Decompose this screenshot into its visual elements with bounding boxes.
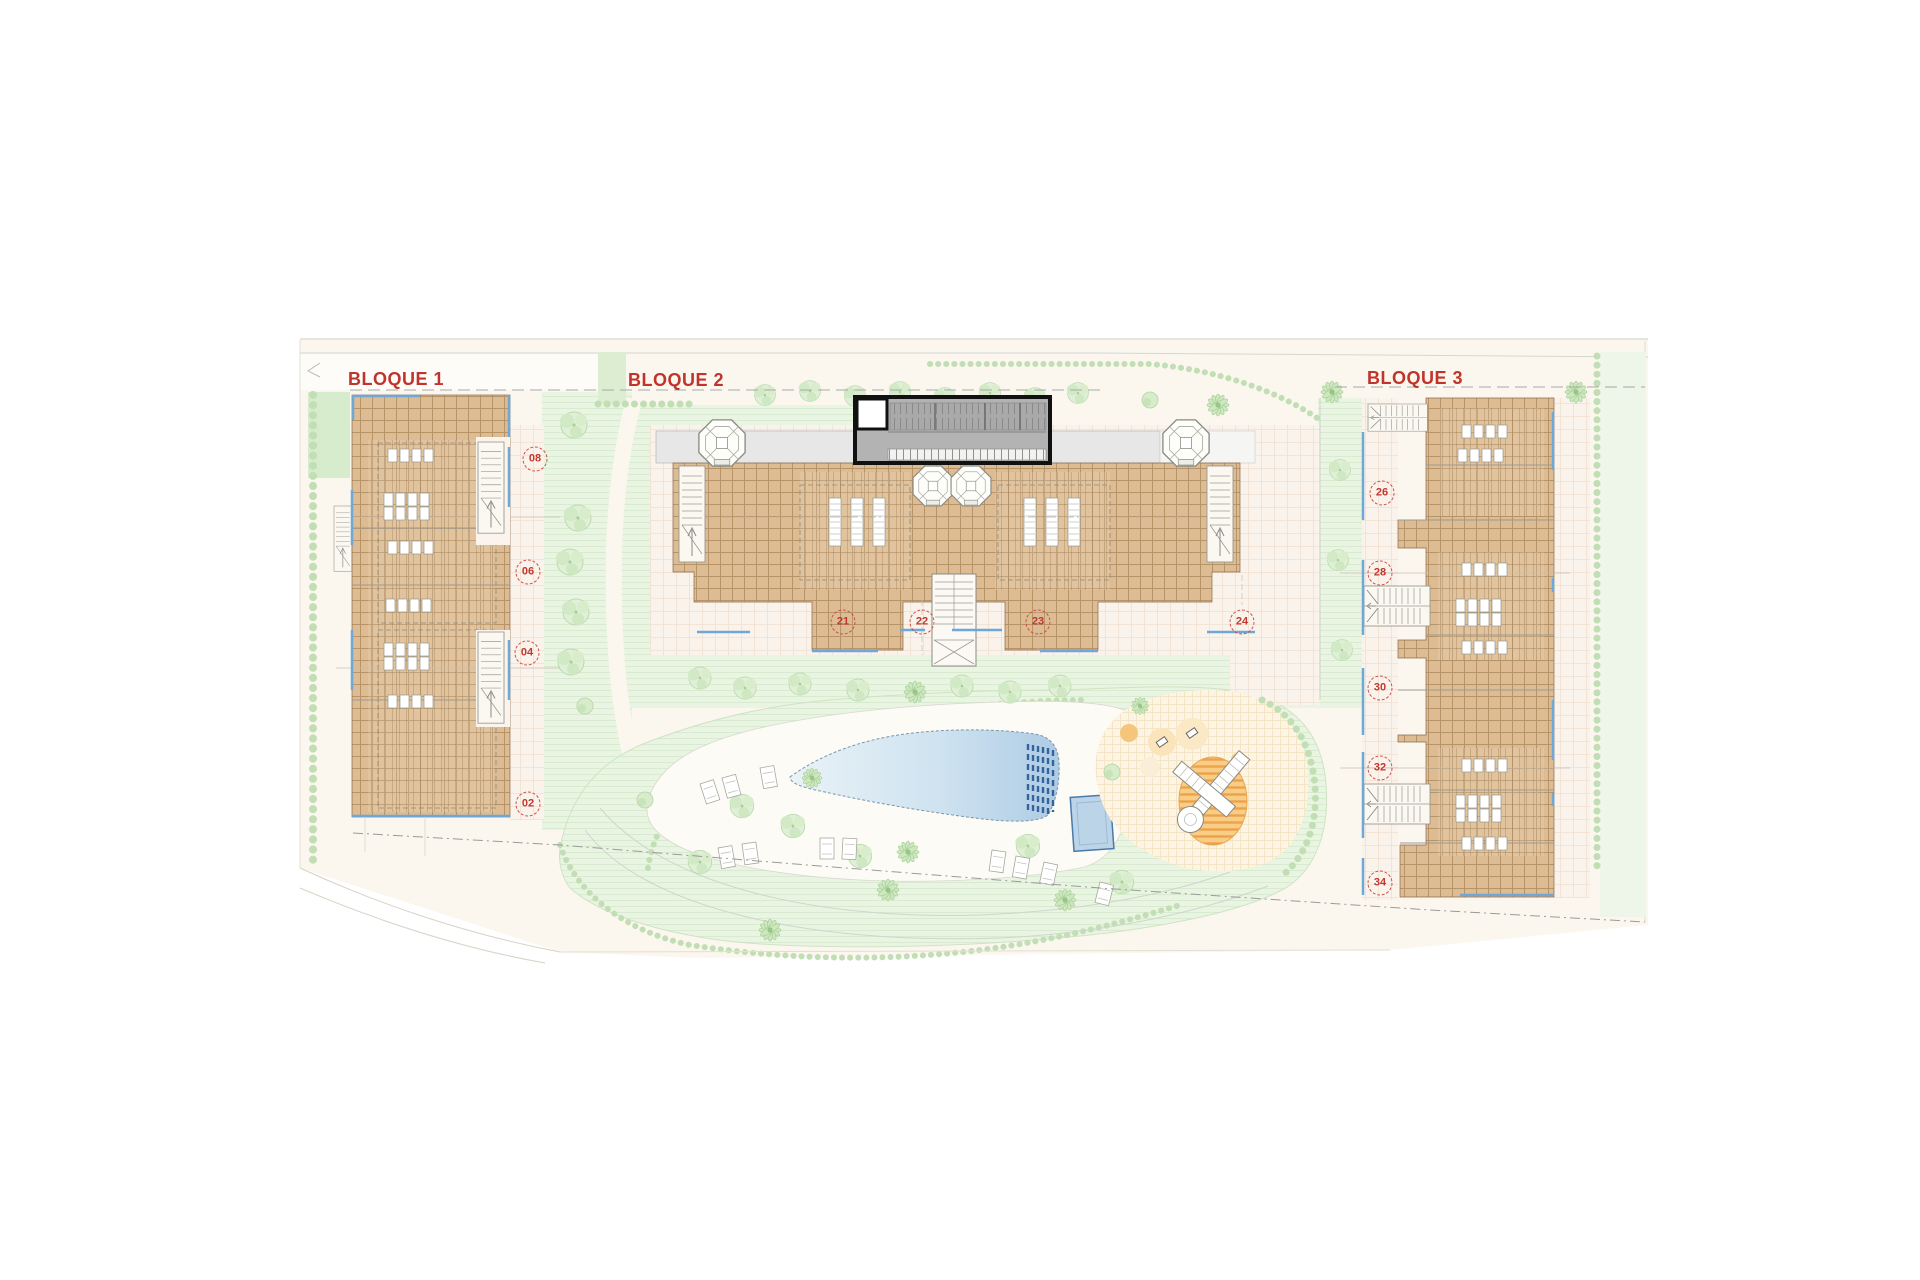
stairs xyxy=(1207,466,1233,562)
tree xyxy=(1048,675,1071,697)
skylight xyxy=(699,420,745,466)
tree xyxy=(846,679,869,701)
tree xyxy=(799,381,821,402)
unit-badge: 02 xyxy=(516,792,541,817)
stairs xyxy=(679,466,705,562)
unit-badge: 26 xyxy=(1370,481,1395,506)
bloque1-label: BLOQUE 1 xyxy=(348,370,444,388)
unit-badge: 28 xyxy=(1368,561,1393,586)
unit-badge: 23 xyxy=(1026,610,1051,635)
lounger xyxy=(742,842,759,865)
unit-badge: 06 xyxy=(516,560,541,585)
tree xyxy=(1067,383,1089,404)
east-green-strip xyxy=(1600,352,1646,917)
stairs xyxy=(1364,586,1430,626)
unit-badge: 04 xyxy=(515,641,540,666)
stairs xyxy=(478,632,504,723)
lounger xyxy=(842,838,857,860)
skylight xyxy=(1163,420,1209,466)
top-road-band xyxy=(300,354,610,390)
stairs xyxy=(478,442,504,533)
roof-units xyxy=(851,498,863,546)
tree xyxy=(560,412,587,438)
tree xyxy=(556,549,583,575)
roof-units xyxy=(873,498,885,546)
unit-badge: 22 xyxy=(910,610,935,635)
tree xyxy=(562,599,589,625)
tree xyxy=(1109,870,1133,893)
unit-badge: 30 xyxy=(1368,676,1393,701)
bush xyxy=(1104,764,1120,780)
skylight xyxy=(951,466,991,506)
central-stair-shaft xyxy=(932,574,976,666)
play-circle xyxy=(1140,757,1160,777)
skylight xyxy=(913,466,953,506)
unit-badge: 08 xyxy=(523,447,548,472)
bush xyxy=(577,698,593,714)
roof-units xyxy=(1068,498,1080,546)
roof-units xyxy=(1024,498,1036,546)
stairs xyxy=(1364,784,1430,824)
access-structure xyxy=(855,397,1050,463)
bloque3-terraces xyxy=(1554,398,1590,898)
site-plan-drawing xyxy=(0,0,1920,1280)
tree xyxy=(788,673,811,695)
tree xyxy=(1329,460,1351,481)
roof-units xyxy=(829,498,841,546)
site-plan-page: BLOQUE 1 BLOQUE 2 BLOQUE 3 08 06 04 02 2… xyxy=(0,0,1920,1280)
tree xyxy=(687,850,711,873)
bloque2-label: BLOQUE 2 xyxy=(628,371,724,389)
tree xyxy=(688,667,711,689)
tree xyxy=(729,794,753,817)
tree xyxy=(733,677,756,699)
stairs xyxy=(334,506,352,571)
play-circle xyxy=(1120,724,1138,742)
tree xyxy=(950,675,973,697)
tree xyxy=(998,681,1021,703)
tree xyxy=(754,385,776,406)
bush xyxy=(1142,392,1158,408)
bloque3-walkway xyxy=(1362,398,1398,900)
pergola xyxy=(1440,408,1544,516)
roof-units xyxy=(1046,498,1058,546)
unit-badge: 32 xyxy=(1368,756,1393,781)
tree xyxy=(1015,834,1039,857)
bush xyxy=(637,792,653,808)
lounger xyxy=(989,850,1006,873)
unit-badge: 21 xyxy=(831,610,856,635)
stairs xyxy=(1368,404,1427,431)
hedge-block xyxy=(598,352,626,404)
lounger xyxy=(820,838,834,859)
tree xyxy=(1327,550,1349,571)
tick-strip xyxy=(888,449,1046,460)
tree xyxy=(557,649,584,675)
tree xyxy=(564,505,591,531)
tree xyxy=(780,814,804,837)
bloque1-walkway xyxy=(510,425,544,820)
bloque3-label: BLOQUE 3 xyxy=(1367,369,1463,387)
unit-badge: 24 xyxy=(1230,610,1255,635)
tree xyxy=(1331,640,1353,661)
bloque2-3-walkway xyxy=(1230,425,1320,705)
shaft xyxy=(857,399,887,429)
ramp xyxy=(890,403,1046,430)
unit-badge: 34 xyxy=(1368,871,1393,896)
